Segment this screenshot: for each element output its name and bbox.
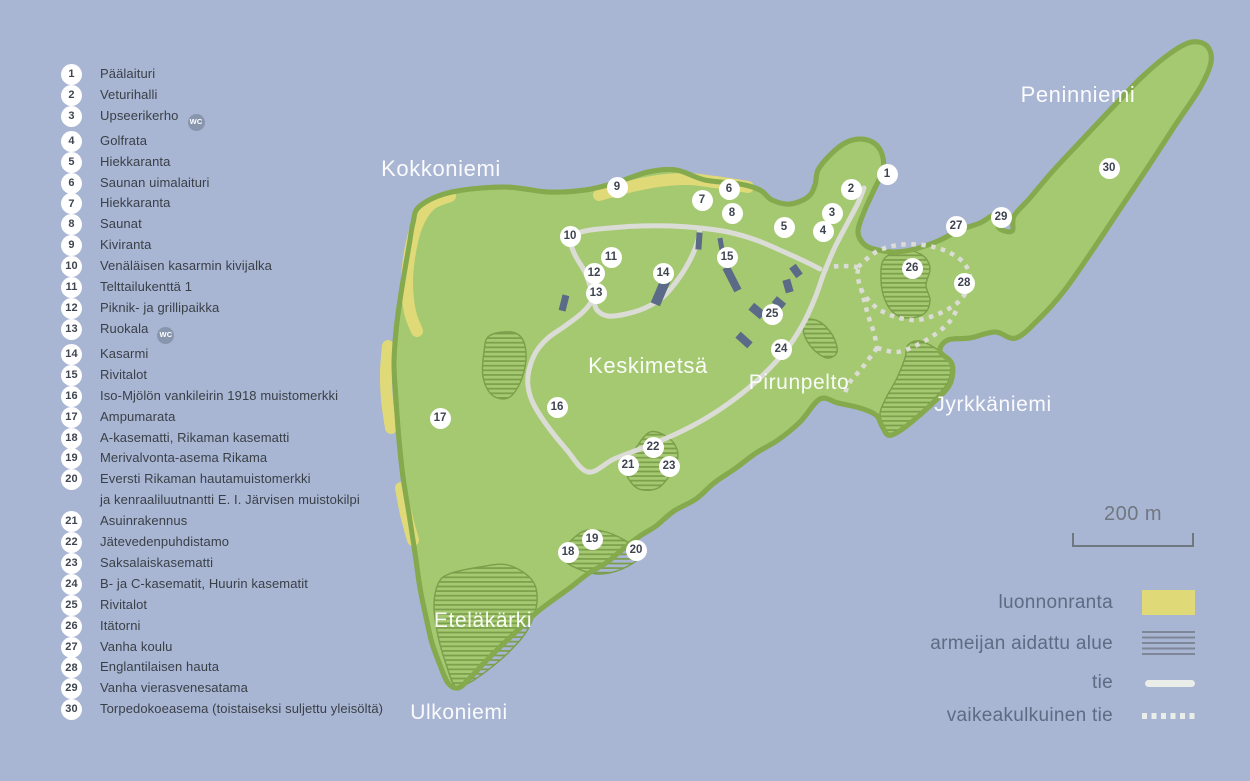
poi-label: Kiviranta xyxy=(100,237,151,252)
map-marker-10: 10 xyxy=(560,226,581,247)
poi-number-badge: 17 xyxy=(61,407,82,428)
map-marker-6: 6 xyxy=(719,179,740,200)
poi-number-badge: 10 xyxy=(61,256,82,277)
poi-list-item-21: 21Asuinrakennus xyxy=(61,511,421,532)
poi-label: Itätorni xyxy=(100,618,141,633)
poi-list-item-29: 29Vanha vierasvenesatama xyxy=(61,678,421,699)
poi-list-item-17: 17Ampumarata xyxy=(61,407,421,428)
island-map-page: 1234567891011121314151617181920212223242… xyxy=(0,0,1250,781)
map-marker-20: 20 xyxy=(626,540,647,561)
poi-label: Vanha vierasvenesatama xyxy=(100,680,248,695)
poi-number-badge: 20 xyxy=(61,469,82,490)
map-legend-label: luonnonranta xyxy=(998,592,1113,614)
region-label: Keskimetsä xyxy=(588,353,708,379)
poi-number-badge: 25 xyxy=(61,595,82,616)
region-label: Pirunpelto xyxy=(749,371,850,395)
poi-label: Venäläisen kasarmin kivijalka xyxy=(100,258,272,273)
map-marker-7: 7 xyxy=(692,190,713,211)
map-marker-17: 17 xyxy=(430,408,451,429)
poi-list-item-19: 19Merivalvonta-asema Rikama xyxy=(61,448,421,469)
building xyxy=(695,232,702,249)
map-marker-22: 22 xyxy=(643,437,664,458)
poi-label: Rivitalot xyxy=(100,367,147,382)
poi-list-item-18: 18A-kasematti, Rikaman kasematti xyxy=(61,428,421,449)
poi-number-badge: 8 xyxy=(61,214,82,235)
map-marker-15: 15 xyxy=(717,247,738,268)
poi-label: Eversti Rikaman hautamuistomerkki xyxy=(100,471,311,486)
poi-list-item-15: 15Rivitalot xyxy=(61,365,421,386)
poi-number-badge: 22 xyxy=(61,532,82,553)
poi-number-badge: 21 xyxy=(61,511,82,532)
poi-list-item-7: 7Hiekkaranta xyxy=(61,193,421,214)
poi-number-badge: 9 xyxy=(61,235,82,256)
map-marker-21: 21 xyxy=(618,455,639,476)
legend-swatch-beach xyxy=(1142,590,1195,615)
poi-list-item-22: 22Jätevedenpuhdistamo xyxy=(61,532,421,553)
poi-list-item-25: 25Rivitalot xyxy=(61,595,421,616)
map-legend-label: vaikeakulkuinen tie xyxy=(947,705,1113,727)
poi-list-item-10: 10Venäläisen kasarmin kivijalka xyxy=(61,256,421,277)
map-legend-row-road: tie xyxy=(1092,672,1195,694)
region-label: Peninniemi xyxy=(1021,82,1136,108)
map-marker-30: 30 xyxy=(1099,158,1120,179)
map-marker-5: 5 xyxy=(774,217,795,238)
map-legend-row-trail: vaikeakulkuinen tie xyxy=(947,705,1195,727)
poi-label: Asuinrakennus xyxy=(100,513,187,528)
poi-label-line2: ja kenraaliluutnantti E. I. Järvisen mui… xyxy=(100,490,421,511)
poi-number-badge: 4 xyxy=(61,131,82,152)
poi-list-item-28: 28Englantilaisen hauta xyxy=(61,657,421,678)
poi-number-badge: 16 xyxy=(61,386,82,407)
map-marker-8: 8 xyxy=(722,203,743,224)
poi-label: Veturihalli xyxy=(100,87,157,102)
poi-number-badge: 23 xyxy=(61,553,82,574)
map-marker-4: 4 xyxy=(813,221,834,242)
poi-list-item-8: 8Saunat xyxy=(61,214,421,235)
map-legend-label: tie xyxy=(1092,672,1113,694)
poi-list-item-23: 23Saksalaiskasematti xyxy=(61,553,421,574)
map-marker-1: 1 xyxy=(877,164,898,185)
map-marker-11: 11 xyxy=(601,247,622,268)
poi-list-item-12: 12Piknik- ja grillipaikka xyxy=(61,298,421,319)
map-legend-row-fenced: armeijan aidattu alue xyxy=(930,631,1195,657)
poi-list-item-26: 26Itätorni xyxy=(61,616,421,637)
legend-swatch-road xyxy=(1145,680,1195,687)
poi-label: Kasarmi xyxy=(100,346,148,361)
poi-number-badge: 28 xyxy=(61,657,82,678)
poi-label: Päälaituri xyxy=(100,66,155,81)
map-marker-16: 16 xyxy=(547,397,568,418)
poi-label: Saunan uimalaituri xyxy=(100,175,209,190)
poi-number-badge: 19 xyxy=(61,448,82,469)
poi-number-badge: 11 xyxy=(61,277,82,298)
poi-label: Torpedokoeasema (toistaiseksi suljettu y… xyxy=(100,701,383,716)
legend-swatch-trail xyxy=(1142,713,1195,719)
wc-badge: WC xyxy=(157,327,174,344)
poi-list-item-16: 16Iso-Mjölön vankileirin 1918 muistomerk… xyxy=(61,386,421,407)
poi-list-item-6: 6Saunan uimalaituri xyxy=(61,173,421,194)
poi-label: Ruokala xyxy=(100,321,148,336)
poi-label: Upseerikerho xyxy=(100,108,179,123)
map-legend-label: armeijan aidattu alue xyxy=(930,633,1113,655)
poi-number-badge: 24 xyxy=(61,574,82,595)
poi-number-badge: 14 xyxy=(61,344,82,365)
region-label: Jyrkkäniemi xyxy=(934,393,1051,417)
map-marker-13: 13 xyxy=(586,283,607,304)
poi-number-badge: 27 xyxy=(61,637,82,658)
poi-number-badge: 2 xyxy=(61,85,82,106)
map-marker-18: 18 xyxy=(558,542,579,563)
map-marker-12: 12 xyxy=(584,263,605,284)
map-marker-9: 9 xyxy=(607,177,628,198)
map-marker-26: 26 xyxy=(902,258,923,279)
poi-list-item-5: 5Hiekkaranta xyxy=(61,152,421,173)
poi-label: Ampumarata xyxy=(100,409,175,424)
poi-list-item-13: 13RuokalaWC xyxy=(61,319,421,344)
poi-number-badge: 12 xyxy=(61,298,82,319)
poi-label: Vanha koulu xyxy=(100,639,172,654)
poi-label: Piknik- ja grillipaikka xyxy=(100,300,219,315)
poi-label: Hiekkaranta xyxy=(100,154,170,169)
poi-number-badge: 6 xyxy=(61,173,82,194)
map-marker-23: 23 xyxy=(659,456,680,477)
poi-list-item-24: 24B- ja C-kasematit, Huurin kasematit xyxy=(61,574,421,595)
map-marker-19: 19 xyxy=(582,529,603,550)
poi-label: Iso-Mjölön vankileirin 1918 muistomerkki xyxy=(100,388,338,403)
poi-number-badge: 3 xyxy=(61,106,82,127)
legend-swatch-fenced xyxy=(1142,631,1195,657)
map-marker-25: 25 xyxy=(762,304,783,325)
poi-label: Jätevedenpuhdistamo xyxy=(100,534,229,549)
map-legend-row-beach: luonnonranta xyxy=(998,590,1195,615)
poi-list-item-20: 20Eversti Rikaman hautamuistomerkkija ke… xyxy=(61,469,421,511)
poi-label: A-kasematti, Rikaman kasematti xyxy=(100,430,289,445)
poi-number-badge: 18 xyxy=(61,428,82,449)
poi-label: Golfrata xyxy=(100,133,147,148)
poi-list-item-30: 30Torpedokoeasema (toistaiseksi suljettu… xyxy=(61,699,421,720)
scale-bar: 200 m xyxy=(1072,503,1194,547)
poi-label: Saksalaiskasematti xyxy=(100,555,213,570)
poi-list-item-3: 3UpseerikerhoWC xyxy=(61,106,421,131)
poi-number-badge: 26 xyxy=(61,616,82,637)
region-label: Eteläkärki xyxy=(434,609,532,633)
poi-list-item-14: 14Kasarmi xyxy=(61,344,421,365)
poi-number-badge: 15 xyxy=(61,365,82,386)
map-marker-27: 27 xyxy=(946,216,967,237)
poi-list-item-2: 2Veturihalli xyxy=(61,85,421,106)
poi-label: Englantilaisen hauta xyxy=(100,659,219,674)
scale-label: 200 m xyxy=(1072,503,1194,526)
poi-list-item-11: 11Telttailukenttä 1 xyxy=(61,277,421,298)
map-marker-29: 29 xyxy=(991,207,1012,228)
poi-number-badge: 13 xyxy=(61,319,82,340)
poi-legend-list: 1Päälaituri2Veturihalli3UpseerikerhoWC4G… xyxy=(61,64,421,720)
poi-list-item-1: 1Päälaituri xyxy=(61,64,421,85)
poi-label: Telttailukenttä 1 xyxy=(100,279,192,294)
wc-badge: WC xyxy=(188,114,205,131)
poi-label: Rivitalot xyxy=(100,597,147,612)
region-label: Ulkoniemi xyxy=(410,701,508,725)
poi-label: Merivalvonta-asema Rikama xyxy=(100,450,267,465)
poi-list-item-9: 9Kiviranta xyxy=(61,235,421,256)
map-marker-2: 2 xyxy=(841,179,862,200)
poi-list-item-4: 4Golfrata xyxy=(61,131,421,152)
map-marker-24: 24 xyxy=(771,339,792,360)
poi-label: Hiekkaranta xyxy=(100,195,170,210)
poi-label: Saunat xyxy=(100,216,142,231)
poi-list-item-27: 27Vanha koulu xyxy=(61,637,421,658)
poi-number-badge: 1 xyxy=(61,64,82,85)
scale-bracket xyxy=(1072,533,1194,547)
poi-number-badge: 5 xyxy=(61,152,82,173)
poi-number-badge: 29 xyxy=(61,678,82,699)
map-marker-14: 14 xyxy=(653,263,674,284)
poi-number-badge: 30 xyxy=(61,699,82,720)
poi-number-badge: 7 xyxy=(61,193,82,214)
map-marker-28: 28 xyxy=(954,273,975,294)
poi-label: B- ja C-kasematit, Huurin kasematit xyxy=(100,576,308,591)
